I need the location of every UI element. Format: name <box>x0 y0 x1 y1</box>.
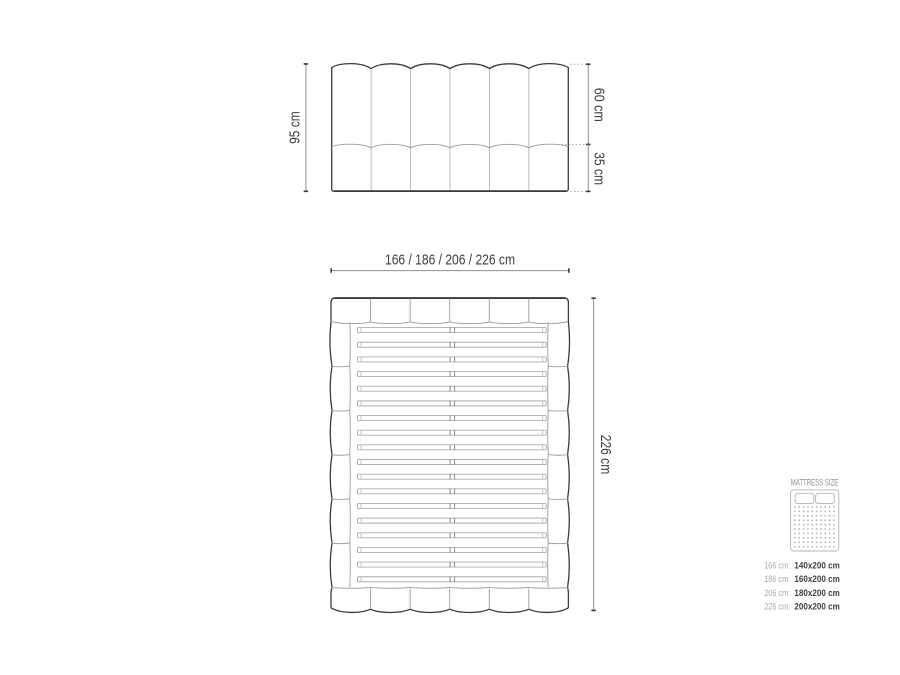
svg-text:MATTRESS SIZE: MATTRESS SIZE <box>791 477 839 487</box>
svg-text:160x200 cm: 160x200 cm <box>794 574 839 584</box>
svg-text:95 cm: 95 cm <box>286 111 303 144</box>
svg-text:166 cm:: 166 cm: <box>764 561 790 571</box>
svg-text:206 cm:: 206 cm: <box>764 588 790 598</box>
svg-text:166 / 186 / 206 / 226 cm: 166 / 186 / 206 / 226 cm <box>385 251 515 268</box>
svg-text:35 cm: 35 cm <box>590 152 607 185</box>
svg-text:226 cm:: 226 cm: <box>764 601 790 611</box>
svg-text:186 cm:: 186 cm: <box>764 574 790 584</box>
svg-text:200x200 cm: 200x200 cm <box>794 601 839 611</box>
svg-text:226 cm: 226 cm <box>597 435 614 475</box>
svg-text:60 cm: 60 cm <box>590 88 607 122</box>
svg-text:180x200 cm: 180x200 cm <box>794 588 839 598</box>
svg-text:140x200 cm: 140x200 cm <box>794 561 839 571</box>
